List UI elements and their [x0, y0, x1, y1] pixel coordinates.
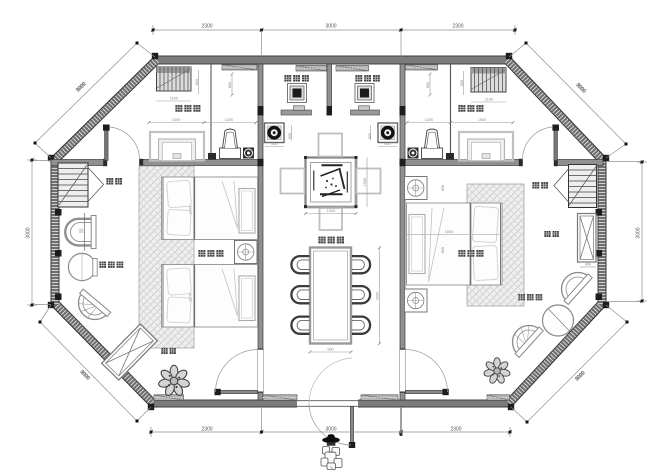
svg-text:3000: 3000 — [325, 427, 336, 433]
svg-text:800: 800 — [441, 185, 445, 191]
svg-text:800: 800 — [441, 247, 445, 253]
svg-text:600: 600 — [271, 142, 277, 146]
svg-text:3000: 3000 — [26, 227, 32, 238]
svg-text:1800: 1800 — [445, 230, 453, 234]
svg-text:3000: 3000 — [75, 81, 87, 93]
svg-text:3000: 3000 — [574, 370, 586, 382]
svg-text:1200: 1200 — [425, 118, 433, 122]
svg-text:600: 600 — [288, 133, 292, 139]
svg-text:3000: 3000 — [575, 82, 587, 94]
svg-text:2000: 2000 — [376, 292, 380, 300]
svg-text:800: 800 — [426, 82, 430, 88]
svg-text:600: 600 — [384, 142, 390, 146]
svg-text:1500: 1500 — [478, 118, 486, 122]
svg-text:2300: 2300 — [201, 24, 212, 30]
svg-text:900: 900 — [327, 347, 333, 351]
svg-text:3000: 3000 — [636, 227, 642, 238]
svg-text:600: 600 — [195, 79, 199, 85]
svg-text:1100: 1100 — [170, 96, 178, 100]
svg-text:400: 400 — [585, 262, 591, 266]
svg-text:2300: 2300 — [450, 427, 461, 433]
svg-text:600: 600 — [460, 80, 464, 86]
svg-text:1100: 1100 — [485, 97, 493, 101]
svg-text:600: 600 — [368, 133, 372, 139]
svg-text:1000: 1000 — [327, 209, 335, 213]
svg-text:1200: 1200 — [189, 293, 193, 301]
svg-text:2300: 2300 — [201, 427, 212, 433]
svg-text:800: 800 — [228, 82, 232, 88]
svg-text:3000: 3000 — [325, 24, 336, 30]
svg-text:2300: 2300 — [452, 24, 463, 30]
svg-text:1200: 1200 — [225, 118, 233, 122]
svg-text:3000: 3000 — [79, 369, 91, 381]
svg-text:1000: 1000 — [363, 178, 367, 186]
svg-text:1200: 1200 — [189, 206, 193, 214]
svg-text:1500: 1500 — [172, 118, 180, 122]
